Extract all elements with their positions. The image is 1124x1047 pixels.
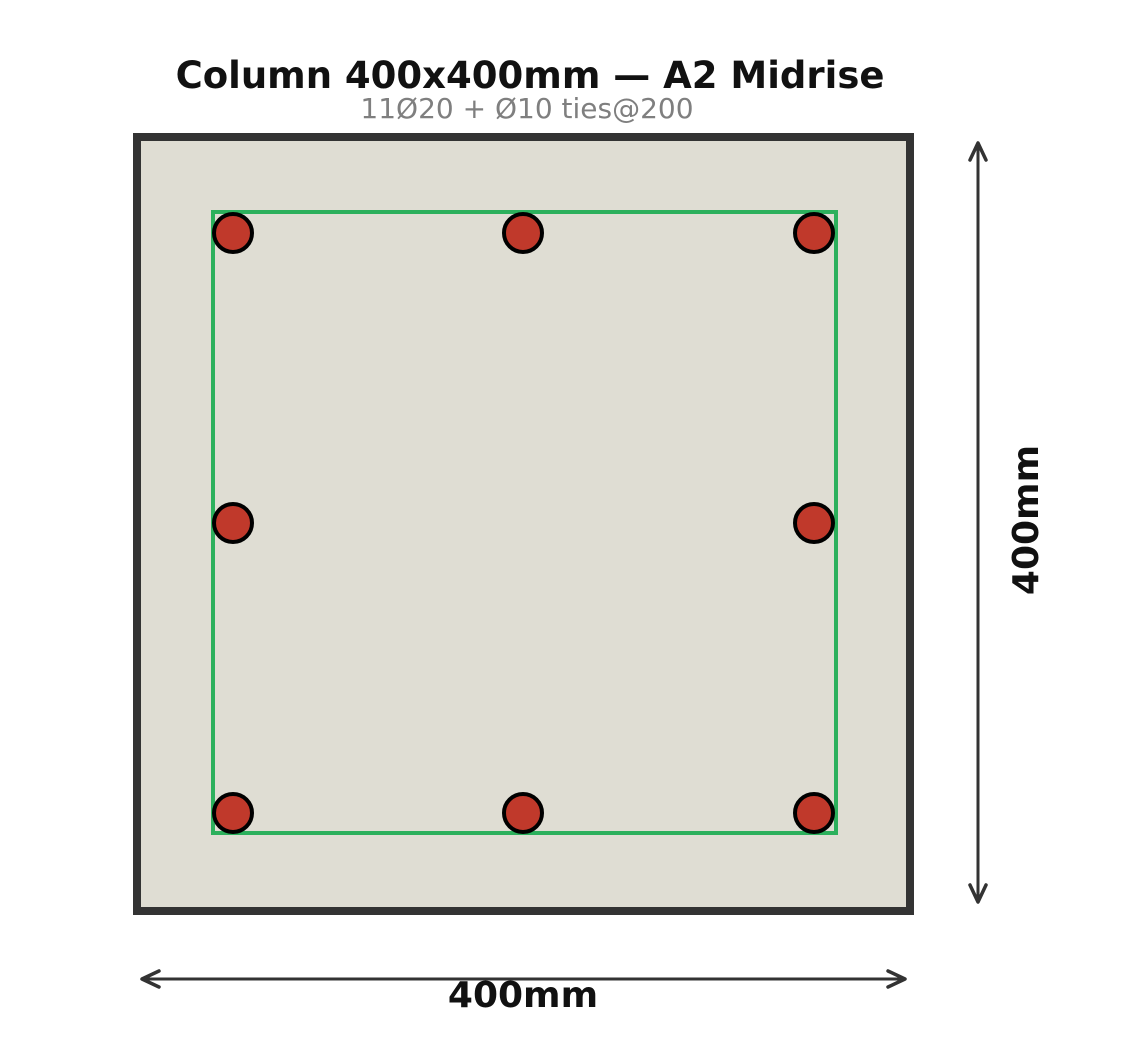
height-dimension: 400mm [978, 143, 1047, 902]
rebar-bar [214, 214, 252, 252]
diagram-canvas: Column 400x400mm — A2 Midrise 11Ø20 + Ø1… [0, 0, 1124, 1047]
width-dimension-label: 400mm [448, 975, 598, 1016]
rebar-bar [214, 504, 252, 542]
figure-subtitle: 11Ø20 + Ø10 ties@200 [360, 92, 693, 125]
width-dimension: 400mm [142, 975, 905, 1016]
height-dimension-label: 400mm [1006, 445, 1047, 595]
rebar-bar [795, 794, 833, 832]
rebar-bar [504, 214, 542, 252]
column-section-figure: Column 400x400mm — A2 Midrise 11Ø20 + Ø1… [0, 0, 1124, 1047]
rebar-bar [504, 794, 542, 832]
figure-title: Column 400x400mm — A2 Midrise [176, 54, 885, 97]
rebar-bar [795, 504, 833, 542]
rebar-bar [795, 214, 833, 252]
rebar-bar [214, 794, 252, 832]
